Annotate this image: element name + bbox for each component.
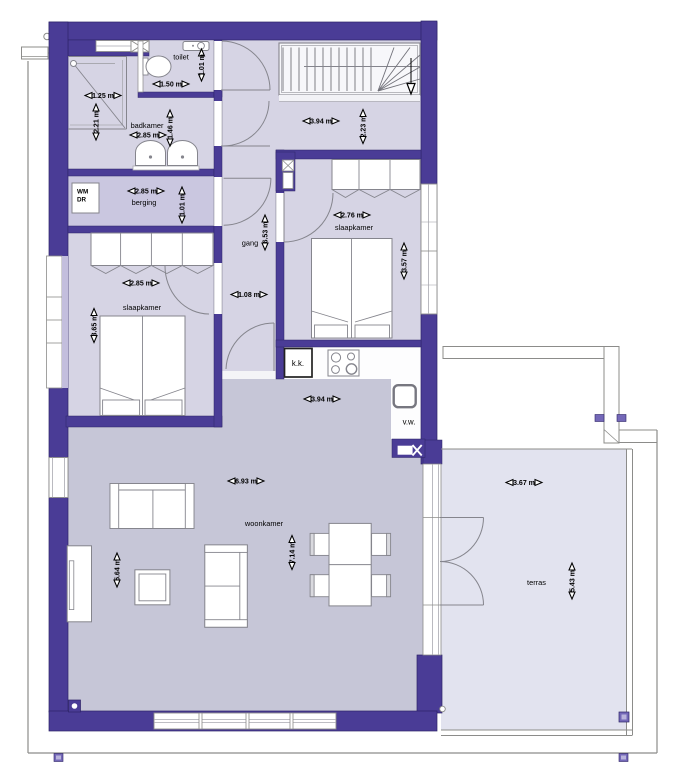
svg-text:badkamer: badkamer	[131, 121, 164, 130]
svg-text:terras: terras	[527, 578, 546, 587]
svg-text:3.57 m: 3.57 m	[402, 250, 409, 272]
svg-text:3.67 m: 3.67 m	[513, 480, 535, 487]
svg-text:2.85 m: 2.85 m	[137, 133, 159, 140]
svg-text:6.53 m: 6.53 m	[263, 222, 270, 244]
svg-text:1.01 m: 1.01 m	[199, 54, 206, 76]
svg-text:2.85 m: 2.85 m	[130, 281, 152, 288]
svg-text:5.43 m: 5.43 m	[570, 570, 577, 592]
svg-text:7.14 m: 7.14 m	[290, 542, 297, 564]
svg-text:berging: berging	[132, 198, 157, 207]
svg-text:v.w.: v.w.	[403, 418, 416, 427]
svg-text:2.76 m: 2.76 m	[341, 213, 363, 220]
svg-text:1.50 m: 1.50 m	[160, 82, 182, 89]
svg-text:6.93 m: 6.93 m	[235, 479, 257, 486]
svg-text:DR: DR	[77, 197, 87, 204]
svg-text:1.25 m: 1.25 m	[92, 93, 114, 100]
svg-text:toilet: toilet	[173, 53, 189, 62]
svg-text:WM: WM	[77, 189, 88, 196]
svg-text:3.94 m: 3.94 m	[310, 119, 332, 126]
svg-text:1.01 m: 1.01 m	[180, 194, 187, 216]
svg-text:slaapkamer: slaapkamer	[335, 223, 374, 232]
svg-text:k.k.: k.k.	[292, 359, 304, 368]
svg-text:3.65 m: 3.65 m	[92, 315, 99, 337]
svg-text:1.08 m: 1.08 m	[238, 292, 260, 299]
svg-text:2.23 m: 2.23 m	[361, 116, 368, 138]
svg-text:3.94 m: 3.94 m	[311, 397, 333, 404]
svg-text:gang: gang	[242, 239, 258, 248]
svg-text:1.46 m: 1.46 m	[168, 117, 175, 139]
svg-text:2.21 m: 2.21 m	[94, 111, 101, 133]
svg-text:5.64 m: 5.64 m	[115, 559, 122, 581]
svg-text:2.85 m: 2.85 m	[135, 189, 157, 196]
svg-text:slaapkamer: slaapkamer	[123, 303, 162, 312]
svg-text:woonkamer: woonkamer	[244, 519, 284, 528]
